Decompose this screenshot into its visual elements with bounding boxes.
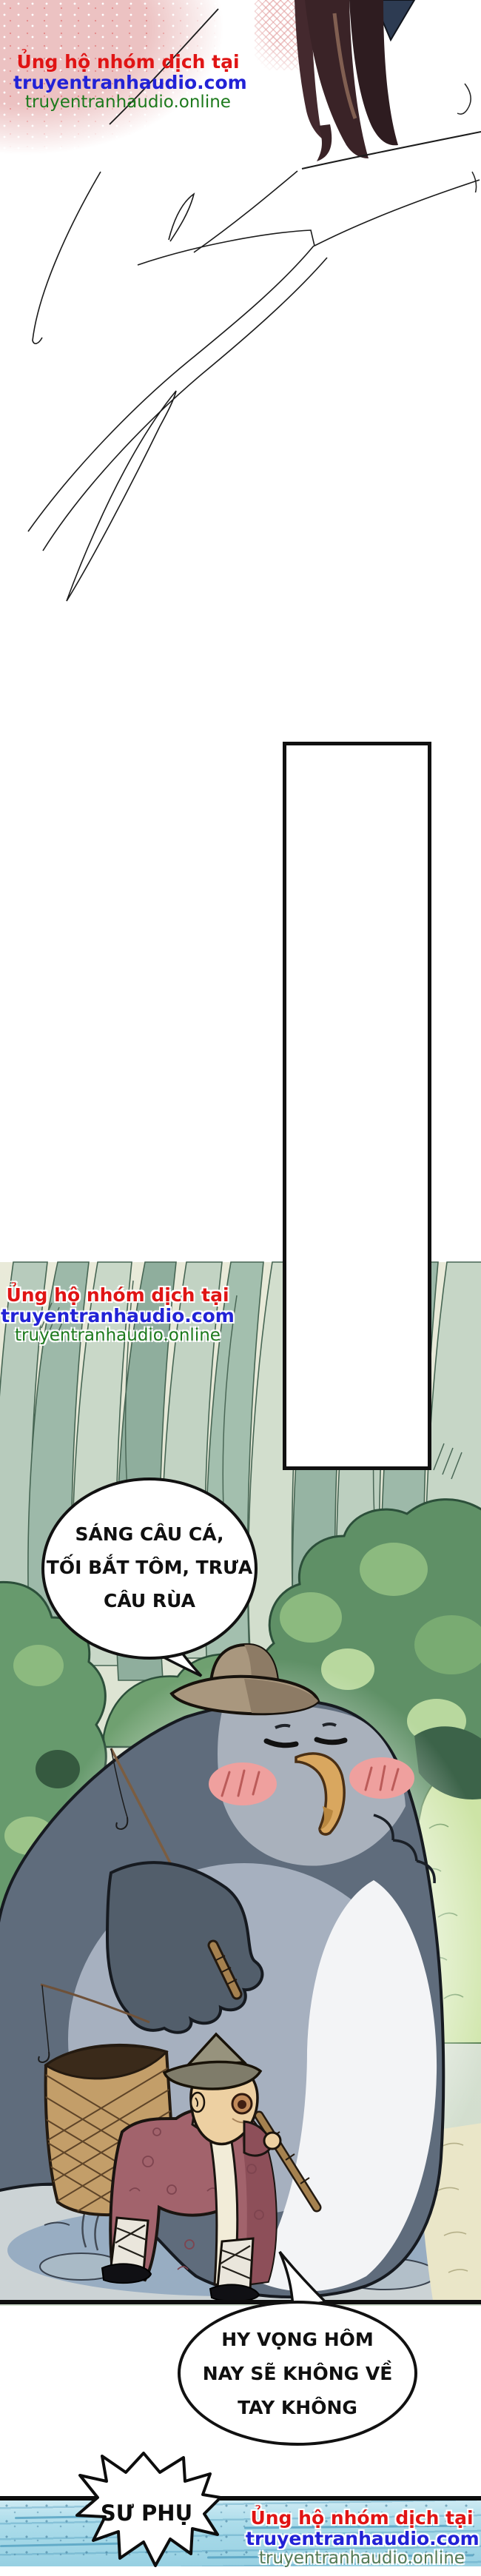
empty-comic-panel	[283, 742, 431, 1470]
webtoon-page: { "page": { "kind": "translated webtoon …	[0, 0, 481, 2566]
watermark-site-online: truyentranhaudio.online	[246, 2549, 478, 2569]
hand	[264, 2133, 280, 2149]
bird-beak-shadow	[320, 1806, 333, 1830]
bird-body	[0, 1701, 443, 2297]
right-leg-wrap	[218, 2238, 253, 2290]
fishing-line	[111, 1748, 127, 1817]
watermark-site-online: truyentranhaudio.online	[0, 1326, 235, 1346]
watermark-bottom: Ủng hộ nhóm dịch tại truyentranhaudio.co…	[246, 2508, 478, 2569]
bird-right-blush	[349, 1757, 414, 1799]
left-leg-wrap	[111, 2218, 148, 2271]
basket-lattice	[30, 2058, 185, 2243]
bird-belly	[252, 1880, 437, 2292]
water-streak	[15, 2514, 192, 2519]
bird-left-eye-closed	[266, 1741, 296, 1745]
forest-scene-panel	[0, 1258, 481, 2306]
bamboo-stick-outline	[259, 2116, 317, 2207]
old-man-head	[191, 2062, 258, 2144]
watermark-middle: Ủng hộ nhóm dịch tại truyentranhaudio.co…	[0, 1285, 235, 1346]
squinted-eye	[223, 2086, 234, 2087]
bird-halo-glow	[30, 1658, 481, 2250]
bamboo-rings	[216, 1956, 237, 1984]
feather-scallops	[374, 1815, 434, 1883]
bubble1-line2: TỐI BẮT TÔM, TRƯA	[47, 1551, 252, 1584]
watermark-site-online: truyentranhaudio.online	[13, 93, 243, 113]
pink-crosshatch-texture	[255, 0, 329, 70]
left-shoe	[102, 2264, 151, 2283]
wicker-basket	[46, 2045, 172, 2215]
hair-strands-art	[0, 0, 481, 192]
bubble1-line1: SÁNG CÂU CÁ,	[75, 1517, 223, 1551]
shoulder-contour-line	[110, 9, 218, 124]
watermark-top: Ủng hộ nhóm dịch tại truyentranhaudio.co…	[13, 52, 243, 113]
right-shoe	[210, 2284, 259, 2301]
sash-collar	[192, 2116, 234, 2134]
bird-right-eyebrow	[323, 1724, 336, 1725]
water-streak	[207, 2554, 474, 2558]
speech-bubble-old-man: HY VỌNG HÔM NAY SẼ KHÔNG VỀ TAY KHÔNG	[178, 2301, 417, 2446]
sleeve	[244, 2121, 272, 2156]
watermark-site-com: truyentranhaudio.com	[0, 1306, 235, 1326]
bamboo-stick	[259, 2116, 317, 2207]
fishing-hook	[116, 1817, 127, 1829]
bird-left-eyebrow	[275, 1725, 290, 1728]
mouth-opening	[238, 2100, 246, 2109]
bubble2-line2: NAY SẼ KHÔNG VỀ	[203, 2357, 393, 2391]
rocky-ground	[0, 2123, 481, 2302]
old-man-rod	[38, 1985, 149, 2062]
bubble2-line1: HY VỌNG HÔM	[221, 2323, 374, 2357]
water-streak	[0, 2542, 148, 2547]
rod-bamboo-grip	[213, 1945, 237, 1994]
watermark-site-com: truyentranhaudio.com	[13, 73, 243, 93]
maroon-robe	[110, 2107, 275, 2287]
pink-blossom-background	[0, 0, 255, 181]
fabric-sketch-lines	[0, 170, 481, 614]
giant-bird-character	[0, 1645, 443, 2297]
motion-lines	[82, 2204, 99, 2250]
bird-face	[218, 1705, 406, 1866]
shout-text: SƯ PHỤ	[95, 2500, 198, 2526]
old-man-hat-crown	[186, 2034, 244, 2067]
stick-rings	[271, 2132, 309, 2184]
robe-swirl-pattern	[129, 2128, 263, 2270]
bird-right-eye-closed	[317, 1740, 345, 1743]
chin-wrinkle	[232, 2119, 249, 2122]
shout-burst-bubble	[71, 2450, 222, 2576]
bubble1-line3: CÂU RÙA	[104, 1584, 195, 1617]
bird-left-blush	[209, 1762, 277, 1805]
water-streak	[244, 2524, 466, 2529]
bird-body-shadow	[68, 1863, 420, 2216]
forehead-wrinkle	[219, 2074, 235, 2077]
bird-beak	[296, 1754, 344, 1834]
navy-collar-wedge	[374, 0, 414, 40]
puckered-mouth	[232, 2094, 252, 2113]
bird-fishing-rod	[111, 1748, 222, 1963]
watermark-support-text: Ủng hộ nhóm dịch tại	[0, 1285, 235, 1306]
bird-wing	[107, 1862, 262, 2033]
watermark-support-text: Ủng hộ nhóm dịch tại	[13, 52, 243, 73]
watermark-site-com: truyentranhaudio.com	[246, 2529, 478, 2549]
ear	[191, 2093, 204, 2112]
rod-grip-outline	[213, 1945, 237, 1994]
basket-opening	[46, 2046, 166, 2079]
bird-face-details	[209, 1724, 414, 1834]
white-sash	[209, 2129, 238, 2286]
forest-background	[0, 1262, 481, 2306]
speech-bubble-bird: SÁNG CÂU CÁ, TỐI BẮT TÔM, TRƯA CÂU RÙA	[41, 1477, 258, 1660]
old-man-hat-brim	[164, 2062, 260, 2088]
panel-bottom-border	[0, 2300, 481, 2304]
bubble2-line3: TAY KHÔNG	[238, 2391, 357, 2425]
